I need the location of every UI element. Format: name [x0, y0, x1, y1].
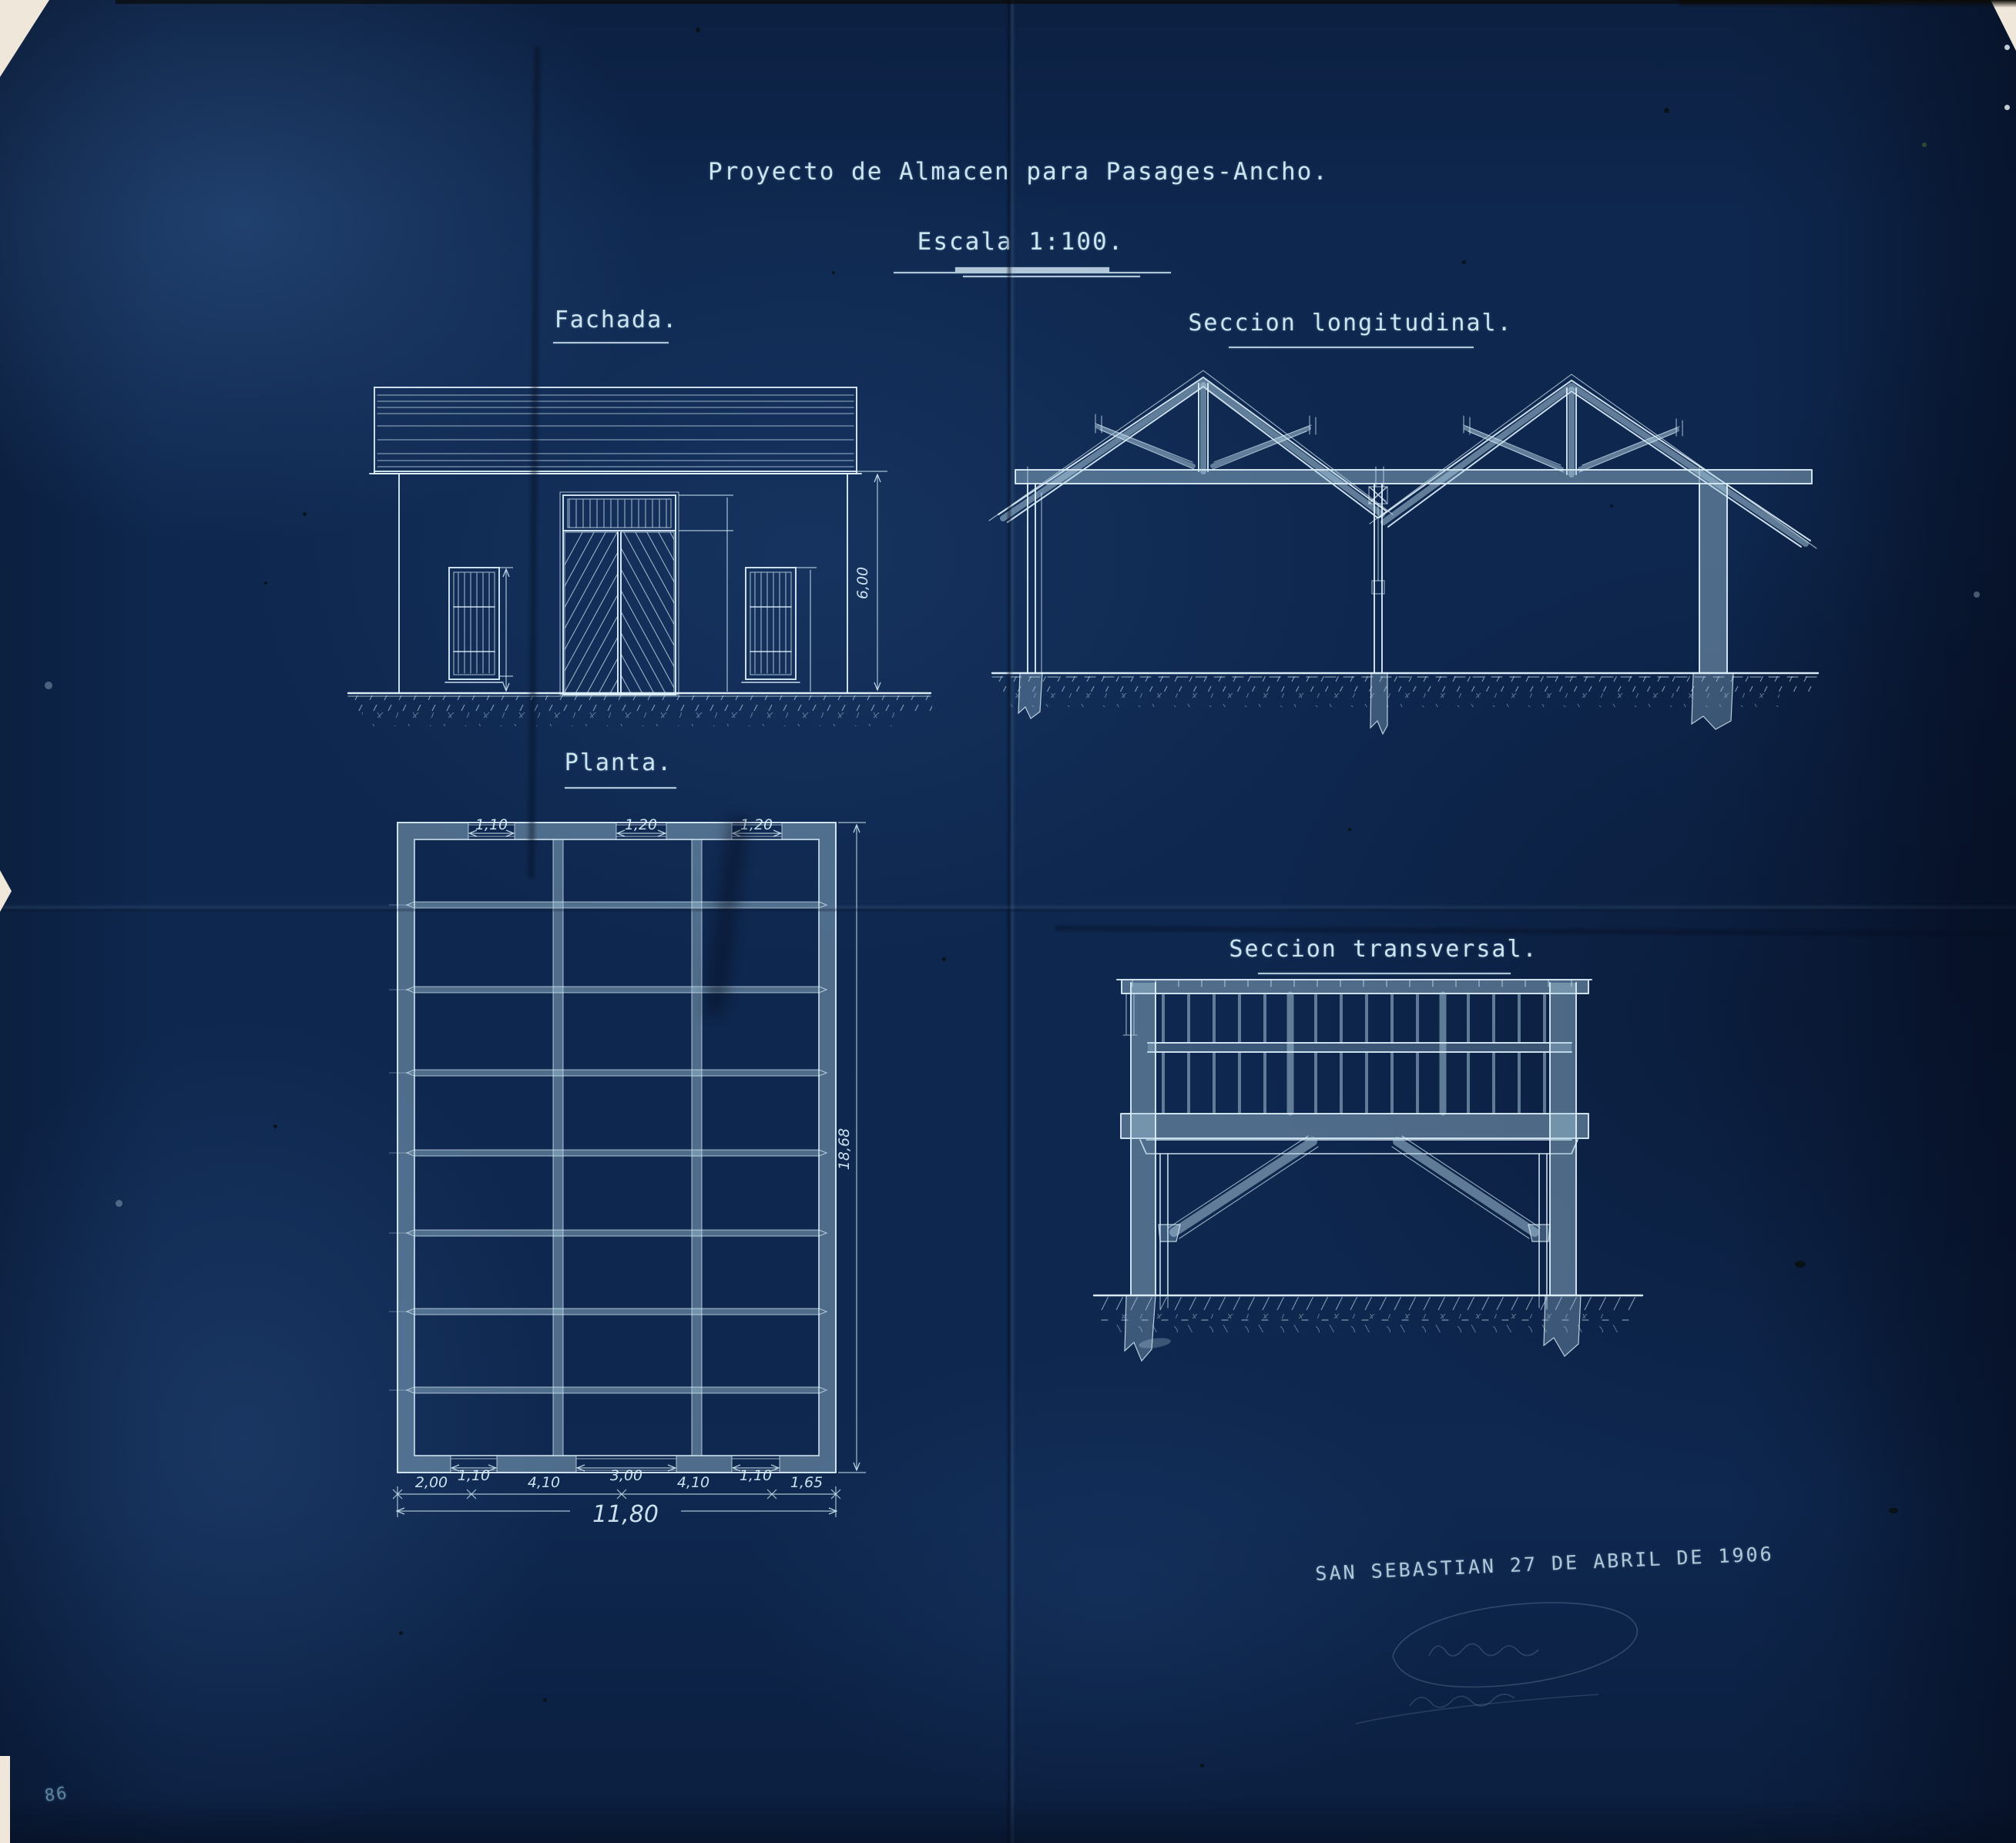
paper-hole [2004, 105, 2010, 110]
dimension-label: 4,10 [677, 1474, 709, 1491]
dimension-label: 11,80 [592, 1501, 659, 1528]
signature-flourish [1356, 1603, 1637, 1724]
facade-dimensions: 6,00 [499, 471, 887, 692]
dimension-label: 1,10 [458, 1467, 490, 1484]
dimension-label: 1,20 [740, 816, 773, 833]
blueprint-sheet: Proyecto de Almacen para Pasages-Ancho. … [0, 0, 2016, 1843]
transversal-section-drawing [1094, 980, 1642, 1361]
longitudinal-section-drawing [989, 370, 1818, 734]
dimension-label: 2,00 [415, 1474, 448, 1491]
drawing-canvas: 6,00 [0, 0, 2016, 1843]
paper-hole [2004, 45, 2010, 50]
dimension-label: 18,68 [836, 1128, 853, 1170]
dimension-label: 1,65 [790, 1474, 823, 1491]
dimension-label: 4,10 [528, 1474, 560, 1491]
plan-dimensions: 1,10 1,20 1,20 1,10 3,00 1,10 2,00 4,10 … [393, 816, 866, 1528]
facade-drawing: 6,00 [348, 387, 932, 726]
dimension-label: 6,00 [854, 567, 871, 599]
dimension-label: 1,10 [740, 1467, 772, 1484]
plan-drawing: 1,10 1,20 1,20 1,10 3,00 1,10 2,00 4,10 … [389, 816, 866, 1528]
bottom-left-paper-edge [0, 1756, 10, 1843]
dimension-label: 1,20 [625, 816, 657, 833]
dimension-label: 1,10 [475, 816, 508, 833]
dimension-label: 3,00 [610, 1467, 642, 1484]
